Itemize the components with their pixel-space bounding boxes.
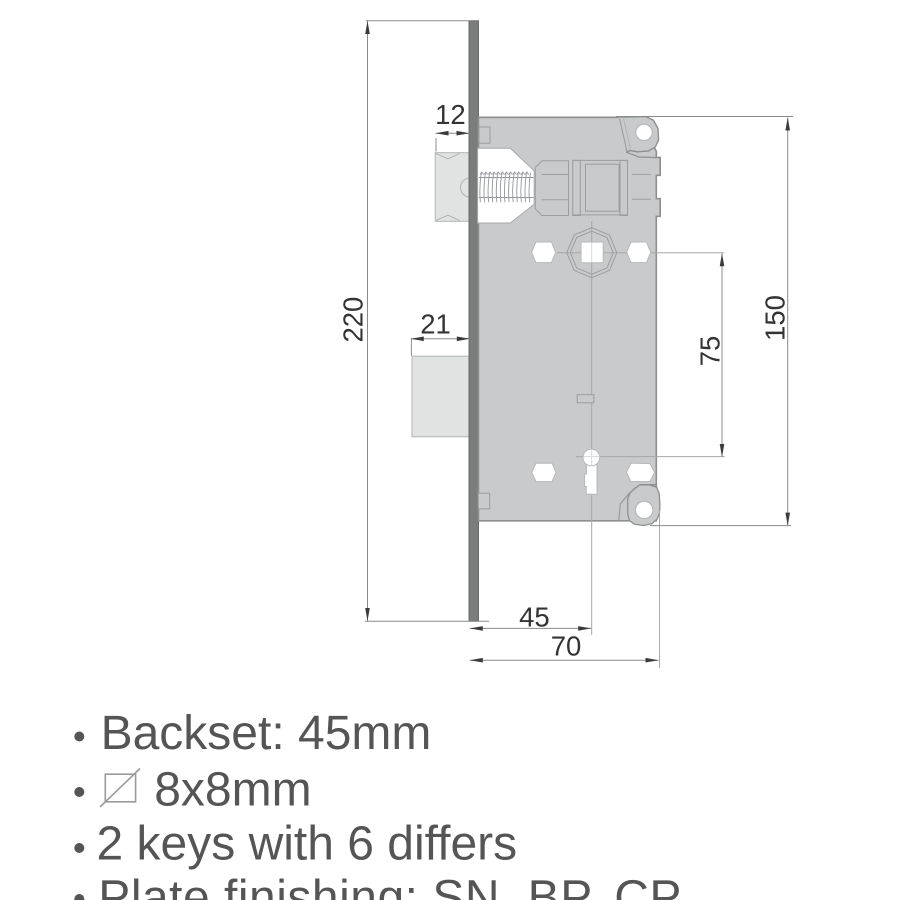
- svg-text:75: 75: [695, 336, 726, 367]
- svg-text:21: 21: [420, 308, 451, 339]
- svg-text:45: 45: [519, 602, 550, 633]
- svg-text:2 keys with 6 differs: 2 keys with 6 differs: [97, 818, 518, 871]
- svg-text:220: 220: [338, 297, 369, 343]
- svg-text:Backset: 45mm: Backset: 45mm: [101, 707, 432, 760]
- svg-text:150: 150: [760, 295, 791, 341]
- svg-text:12: 12: [435, 99, 466, 130]
- svg-text:8x8mm: 8x8mm: [154, 763, 311, 816]
- svg-text:Plate finishing: SN, BP, CP: Plate finishing: SN, BP, CP: [98, 871, 682, 900]
- svg-text:70: 70: [551, 631, 582, 662]
